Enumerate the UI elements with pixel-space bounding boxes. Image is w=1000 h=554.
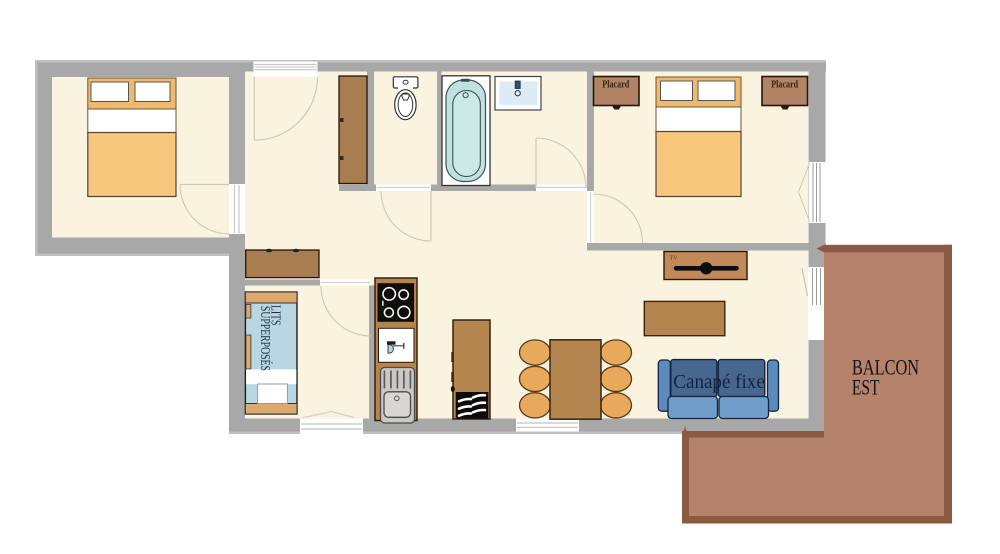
svg-text:EST: EST <box>852 375 880 400</box>
svg-text:SUPPERPOSÉS: SUPPERPOSÉS <box>258 306 273 371</box>
svg-text:Canapé fixe: Canapé fixe <box>673 371 765 393</box>
svg-text:Placard: Placard <box>771 80 798 91</box>
svg-text:TV: TV <box>670 256 679 262</box>
svg-text:Placard: Placard <box>602 80 629 91</box>
